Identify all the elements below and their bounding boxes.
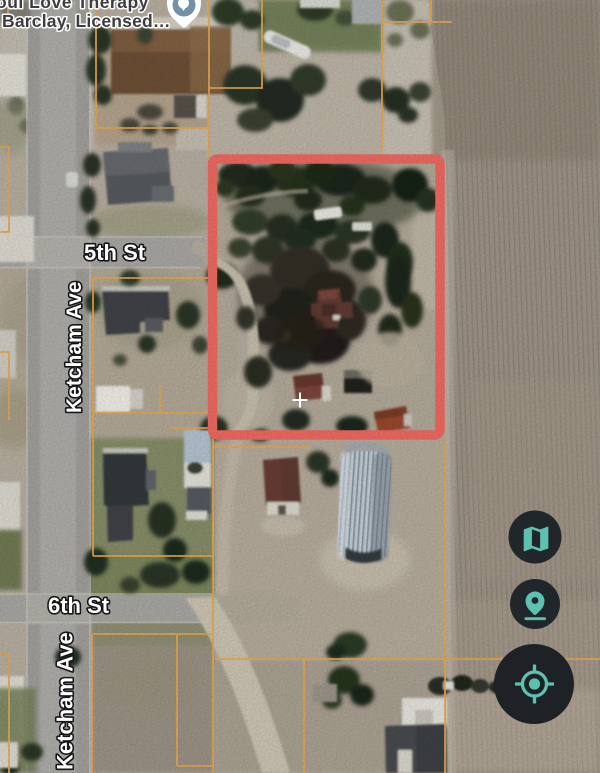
svg-text:6th St: 6th St <box>48 593 110 618</box>
svg-text:Barclay, Licensed…: Barclay, Licensed… <box>2 11 171 31</box>
svg-text:Ketcham Ave: Ketcham Ave <box>53 632 78 770</box>
svg-text:Ketcham Ave: Ketcham Ave <box>63 282 86 414</box>
svg-text:5th St: 5th St <box>84 240 146 265</box>
